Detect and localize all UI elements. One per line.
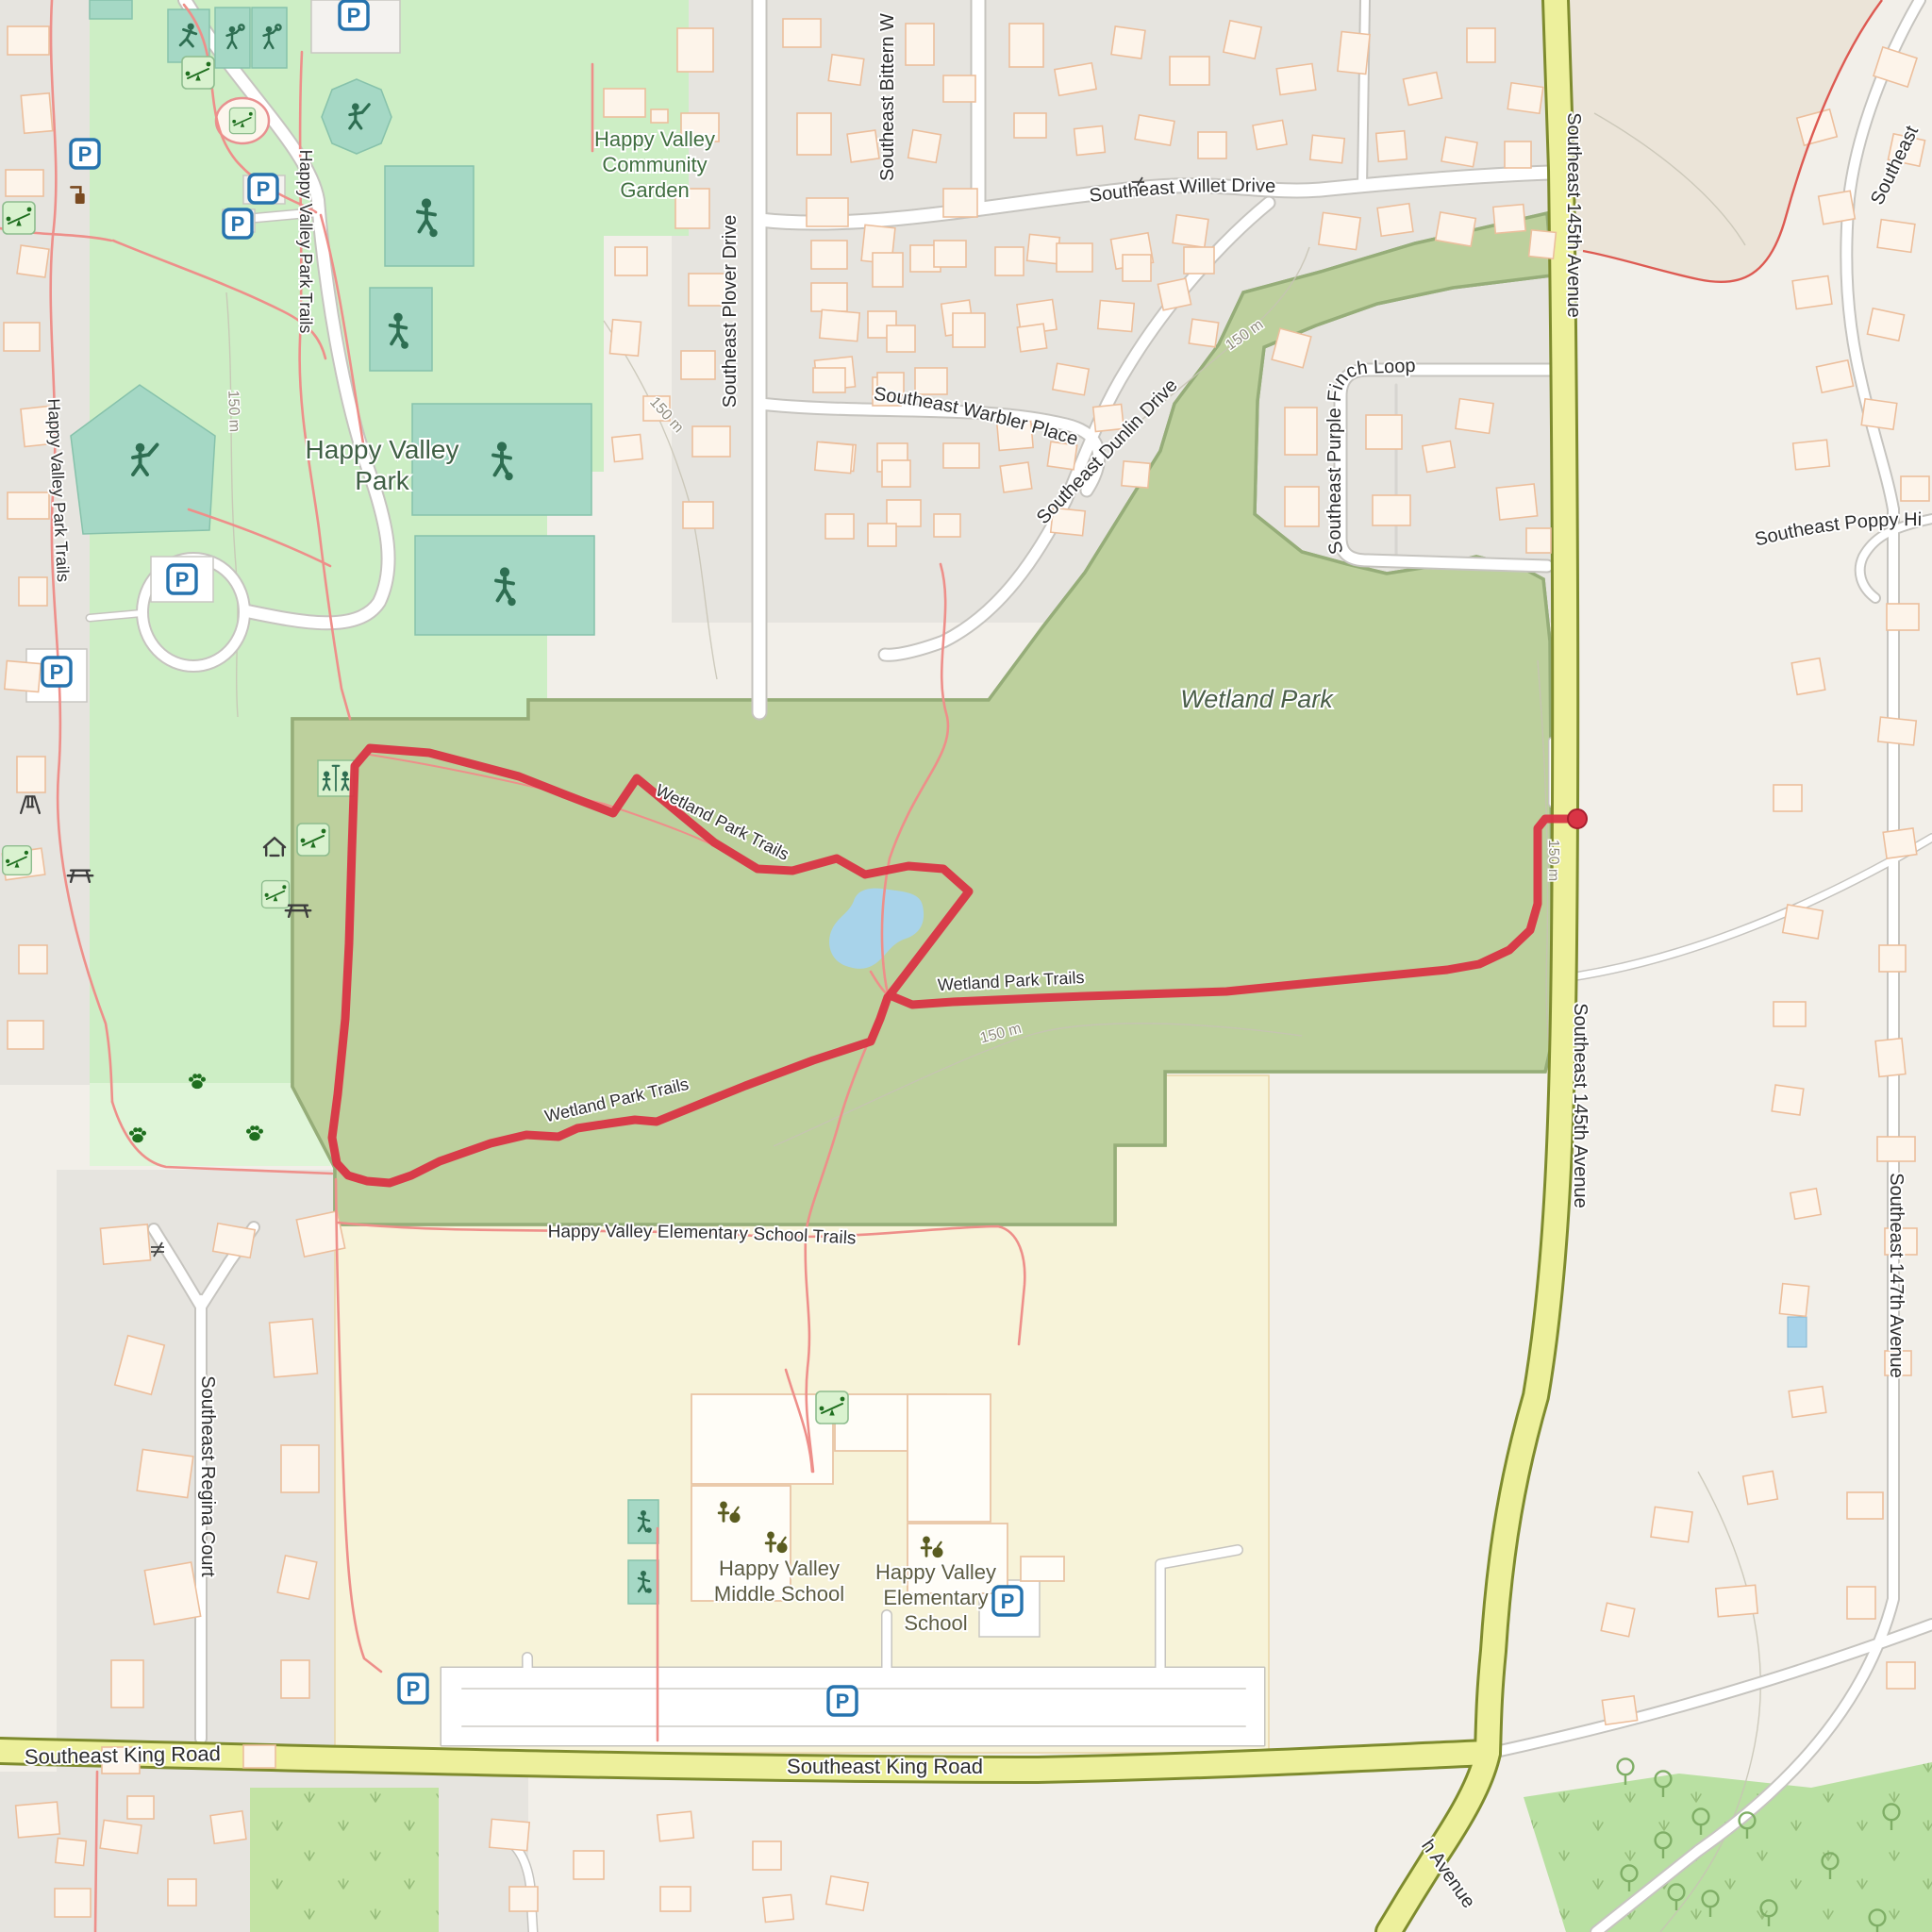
map-label: Southeast 145th Avenue [1570,1003,1591,1208]
house-building [847,130,879,162]
house-building [807,198,848,226]
house-building [490,1819,529,1850]
house-building [16,1802,60,1838]
house-building [1456,399,1493,434]
pitch-small [90,0,132,19]
house-building [887,500,921,526]
house-building [8,492,49,519]
map-label: Southeast Regina Court [197,1375,218,1577]
house-building [868,524,896,546]
house-building [1122,461,1150,488]
house-building [943,443,979,468]
house-building [5,660,41,691]
house-building [1423,441,1455,473]
pgplain-icon [297,824,329,856]
house-building [1253,120,1287,149]
map-label: Southeast Plover Drive [720,215,741,408]
house-building [1505,142,1531,168]
school-building [1021,1557,1064,1581]
soccer-field-2 [370,288,432,371]
house-building [1170,57,1209,85]
school-building [908,1394,991,1522]
house-building [1901,476,1929,501]
pgplain-icon [3,202,35,234]
house-building [21,93,52,133]
map-label: Happy Valley [875,1560,996,1584]
house-building [1098,300,1134,331]
map-label: Southeast 147th Avenue [1886,1173,1907,1378]
house-building [1055,63,1096,96]
house-building [1198,132,1226,158]
house-building [1057,243,1092,272]
house-building [1009,24,1043,67]
house-building [1793,440,1830,470]
house-building [1111,26,1145,58]
house-building [281,1445,319,1492]
house-building [4,323,40,351]
map-label: Happy Valley [594,127,715,151]
map-label: Happy Valley [719,1557,840,1580]
map-label: Southeast 145th Avenue [1563,112,1584,318]
house-building [8,1021,43,1049]
house-building [1526,528,1551,553]
house-building [1496,484,1537,520]
house-building [1053,363,1089,394]
parking-icon [249,175,277,203]
house-building [1743,1471,1778,1504]
house-building [1184,247,1214,274]
house-building [753,1841,781,1870]
house-building [1158,278,1191,310]
house-building [100,1820,142,1853]
house-building [509,1887,538,1911]
house-building [815,441,853,473]
house-building [1651,1507,1692,1541]
house-building [1441,137,1477,167]
house-building [934,514,960,537]
house-building [1783,905,1824,939]
parking-icon [340,1,368,29]
house-building [612,435,643,462]
map-label: Southeast King Road [25,1741,221,1769]
house-building [574,1851,604,1879]
house-building [943,189,977,217]
house-building [873,253,903,287]
house-building [1601,1603,1635,1637]
house-building [213,1224,256,1257]
house-building [908,130,941,163]
house-building [1074,126,1106,156]
house-building [1173,215,1208,247]
house-building [882,460,910,487]
pgplain-icon [229,108,255,133]
map-label: Wetland Park [1180,685,1334,713]
parking-icon [71,140,99,168]
map-label: 150 m [225,390,242,432]
house-building [277,1556,317,1599]
parking-icon [224,209,252,238]
house-building [1366,415,1402,449]
map-label: Happy Valley [306,435,459,464]
house-building [1014,113,1046,138]
house-building [1285,408,1317,455]
house-building [210,1811,246,1843]
house-building [692,426,730,457]
house-building [1716,1585,1757,1617]
house-building [1135,115,1174,145]
house-building [1319,212,1360,249]
dog-park-area [90,1083,330,1166]
house-building [1883,828,1917,858]
house-building [906,24,934,65]
house-building [1779,1284,1808,1317]
house-building [100,1224,150,1264]
house-building [1790,1189,1821,1219]
house-building [1436,212,1476,246]
parking-icon [399,1674,427,1703]
house-building [1819,191,1856,224]
house-building [934,241,966,267]
house-building [797,113,831,155]
pgplain-icon [182,57,214,89]
house-building [1887,604,1919,630]
house-building [1847,1492,1883,1519]
house-building [17,245,49,277]
house-building [943,75,975,102]
map-label: Southeast Bittern W [877,13,898,181]
house-building [953,313,985,347]
house-building [1867,308,1904,341]
house-building [681,351,715,379]
house-building [658,1811,694,1841]
parking-icon [993,1587,1022,1615]
house-building [1774,1002,1806,1026]
map-label: Park [355,466,410,495]
house-building [1467,28,1495,62]
house-building [1123,255,1151,281]
house-building [604,89,645,117]
house-building [828,55,864,85]
house-building [1338,32,1370,75]
map-label: Happy Valley Park Trails [296,150,315,334]
house-building [1224,21,1261,58]
parking-icon [42,658,71,686]
house-building [1847,1587,1875,1619]
house-building [1879,945,1906,972]
house-building [1189,319,1218,347]
house-building [1791,658,1824,695]
map-label: 150 m [1545,840,1561,881]
house-building [825,514,854,539]
house-building [783,19,821,47]
pgplain-icon [262,881,290,908]
parking-icon [828,1687,857,1715]
swimming-pool [1788,1317,1807,1347]
house-building [137,1449,193,1497]
house-building [17,757,45,792]
house-building [1507,83,1543,113]
house-building [19,945,47,974]
house-building [651,109,668,123]
house-building [56,1839,87,1866]
house-building [615,247,647,275]
house-building [1789,1387,1826,1418]
house-building [1816,360,1853,392]
map-label: Middle School [714,1582,844,1606]
map-label: Garden [620,178,689,202]
house-building [1877,220,1915,253]
house-building [1529,230,1557,259]
map-label: Southeast King Road [787,1755,983,1778]
house-building [1017,324,1046,352]
house-building [1861,399,1897,429]
house-building [1373,495,1410,525]
route-start-marker [1568,809,1587,828]
house-building [1887,1662,1915,1689]
house-building [820,309,859,341]
pgplain-icon [3,846,32,875]
house-building [763,1895,794,1923]
house-building [1878,717,1917,745]
map-viewport[interactable]: P [0,0,1932,1932]
house-building [6,170,43,196]
house-building [1772,1085,1804,1115]
house-building [1377,204,1413,236]
house-building [677,28,713,72]
house-building [811,241,847,269]
house-building [813,368,845,392]
house-building [168,1879,196,1906]
house-building [1276,63,1316,94]
house-building [660,1887,691,1911]
house-building [1602,1696,1637,1724]
house-building [19,577,47,606]
house-building [1376,131,1407,162]
house-building [111,1660,143,1707]
house-building [144,1562,200,1624]
house-building [270,1319,318,1377]
house-building [127,1796,154,1819]
pgplain-icon [816,1391,848,1424]
soccer-field-1 [385,166,474,266]
house-building [1000,462,1032,492]
house-building [995,247,1024,275]
parking-icon [168,565,196,593]
house-building [1310,135,1345,162]
house-building [1027,234,1060,263]
house-building [1285,487,1319,526]
map-label: Community [602,153,707,176]
house-building [243,1745,275,1768]
house-building [609,320,641,356]
house-building [281,1660,309,1698]
map-label: School [904,1611,967,1635]
house-building [55,1889,91,1917]
house-building [1875,1039,1906,1077]
house-building [811,283,847,311]
house-building [887,325,915,352]
house-building [1792,276,1832,309]
map-label: Elementary [883,1586,988,1609]
house-building [826,1876,869,1910]
map-canvas[interactable]: P [0,0,1932,1932]
house-building [1493,205,1525,234]
house-building [1774,785,1802,811]
house-building [8,26,49,55]
house-building [1877,1137,1915,1161]
house-building [683,502,713,528]
